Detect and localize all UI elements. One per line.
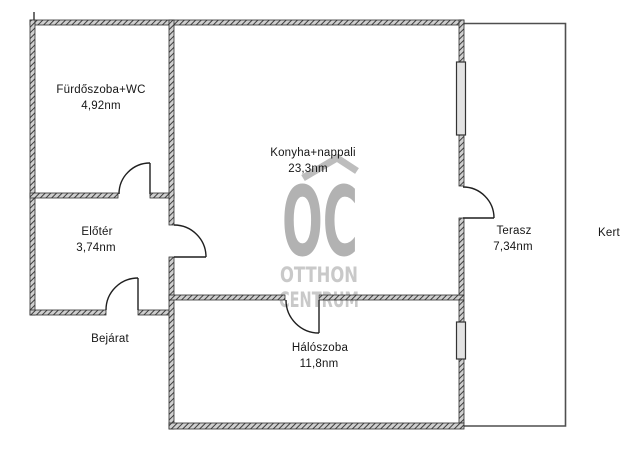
- room-area-bathroom: 4,92nm: [81, 100, 121, 112]
- wall-outer-right-1: [459, 20, 464, 62]
- door-kitchen-terrace: [463, 187, 494, 218]
- wall-outer-right-4: [459, 300, 464, 322]
- door-entrance: [106, 278, 138, 310]
- room-label-terrace: Terasz: [496, 225, 531, 237]
- watermark-logo-group: OC OTTHON CENTRUM: [279, 158, 359, 312]
- door-hall-kitchen: [174, 225, 206, 257]
- door-bathroom: [119, 163, 150, 194]
- wall-inner-vertical-upper: [169, 20, 174, 225]
- floorplan-canvas: OC OTTHON CENTRUM: [0, 0, 640, 465]
- wall-outer-right-3: [459, 218, 464, 295]
- wall-outer-right-5: [459, 359, 464, 423]
- wall-outer-bottom: [169, 423, 464, 429]
- room-area-kitchen-living: 23,3nm: [288, 163, 328, 175]
- wall-bathroom-hall-left: [30, 193, 118, 198]
- wall-inner-vertical-lower: [169, 257, 174, 429]
- wall-kitchen-bedroom-left: [169, 295, 285, 300]
- window-kitchen-icon: [457, 62, 466, 135]
- walls: [30, 20, 464, 429]
- wall-hall-bottom-left: [30, 310, 106, 315]
- room-label-kitchen-living: Konyha+nappali: [270, 147, 356, 159]
- room-area-hall: 3,74nm: [76, 242, 116, 254]
- room-label-hall: Előtér: [81, 226, 112, 238]
- label-garden: Kert: [598, 227, 620, 239]
- label-entrance: Bejárat: [91, 333, 129, 345]
- wall-outer-top: [30, 20, 464, 25]
- wall-kitchen-bedroom-right: [319, 295, 464, 300]
- room-label-bathroom: Fürdőszoba+WC: [56, 84, 145, 96]
- room-area-bedroom: 11,8nm: [300, 358, 339, 370]
- watermark-line1: OTTHON: [280, 263, 358, 287]
- wall-outer-left: [30, 20, 35, 315]
- wall-outer-right-2: [459, 135, 464, 186]
- window-bedroom-icon: [457, 322, 466, 359]
- watermark-logo-text: OC: [282, 166, 358, 278]
- room-label-bedroom: Hálószoba: [292, 342, 348, 354]
- room-area-terrace: 7,34nm: [493, 241, 533, 253]
